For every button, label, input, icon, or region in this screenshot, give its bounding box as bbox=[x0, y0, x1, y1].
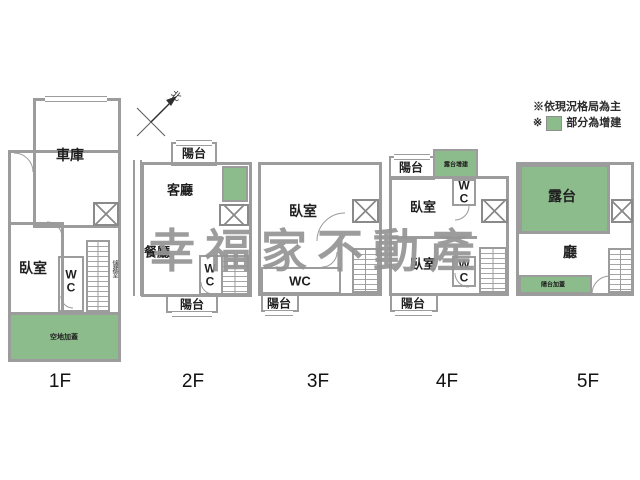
f1-garage-label: 車庫 bbox=[56, 145, 84, 165]
elevator-shaft-4f bbox=[481, 199, 508, 223]
f4-balcony-bottom-label: 陽台 bbox=[401, 295, 425, 312]
legend-line2: ※ 部分為增建 bbox=[533, 115, 621, 131]
f2-balcony-top-label: 陽台 bbox=[182, 145, 206, 162]
compass-icon: 北 bbox=[131, 84, 185, 142]
f3-balcony-label: 陽台 bbox=[267, 295, 291, 312]
legend-line1: ※依現況格局為主 bbox=[533, 99, 621, 115]
f4-bedroom-front-label: 臥室 bbox=[410, 197, 436, 216]
garage-door-opening bbox=[45, 96, 107, 102]
floor-label-4f: 4F bbox=[436, 371, 458, 393]
watermark-text: 幸福家不動產 bbox=[149, 215, 485, 281]
f1-bedroom-label: 臥室 bbox=[19, 258, 47, 278]
floorplan-canvas: 北 ※依現況格局為主 ※ 部分為增建 車庫 臥室 WC 儲藏室 空地加蓋 1F bbox=[0, 0, 640, 480]
addition-color-swatch bbox=[546, 116, 562, 131]
legend-line2-text: 部分為增建 bbox=[566, 115, 621, 131]
f4-balcony-top-label: 陽台 bbox=[399, 159, 423, 176]
f4-wc-front-label: WC bbox=[457, 179, 471, 204]
f2-living-label: 客廳 bbox=[167, 180, 193, 199]
f5-hall-label: 廳 bbox=[563, 242, 577, 262]
f5-balcony-addition-label: 陽台加蓋 bbox=[541, 280, 565, 289]
floor-label-5f: 5F bbox=[577, 371, 599, 393]
stairs-1f bbox=[86, 240, 110, 312]
floor-label-2f: 2F bbox=[182, 371, 204, 393]
f1-storage-label: 儲藏室 bbox=[111, 260, 117, 278]
elevator-shaft-1f bbox=[93, 202, 119, 226]
f1-wc-label: WC bbox=[64, 268, 78, 293]
f5-terrace-label: 露台 bbox=[548, 186, 576, 206]
stairs-5f bbox=[608, 248, 633, 293]
floor-label-1f: 1F bbox=[49, 371, 71, 393]
floor-label-3f: 3F bbox=[307, 371, 329, 393]
f2-addition-area bbox=[222, 166, 248, 202]
elevator-shaft-5f bbox=[611, 199, 633, 223]
legend-note-mark: ※ bbox=[533, 115, 542, 131]
f2-balcony-bottom-label: 陽台 bbox=[180, 296, 204, 313]
f4-terrace-addition-label: 露台增建 bbox=[444, 160, 468, 169]
f1-ground-addition-label: 空地加蓋 bbox=[50, 332, 78, 342]
legend: ※依現況格局為主 ※ 部分為增建 bbox=[533, 99, 621, 131]
